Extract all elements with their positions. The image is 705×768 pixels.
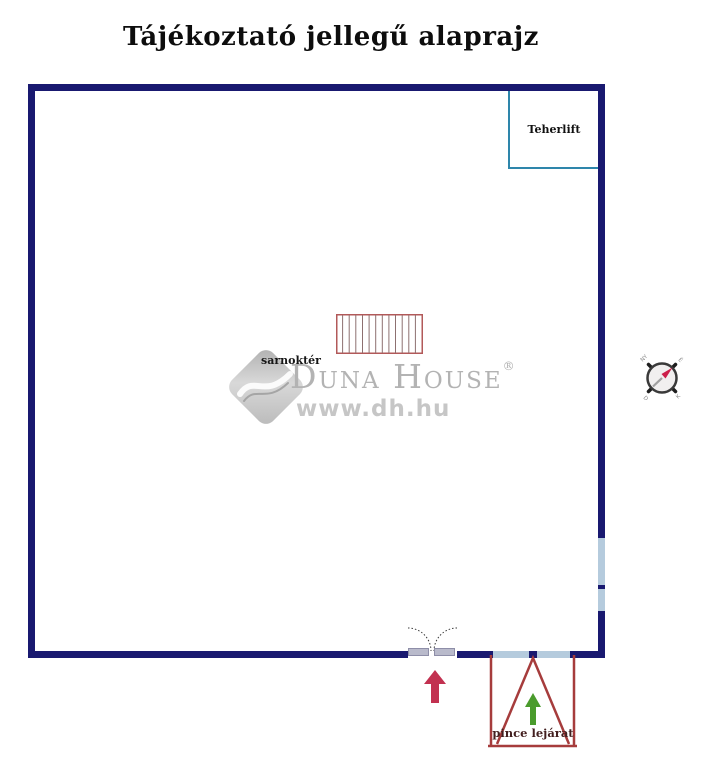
page-title: Tájékoztató jellegű alaprajz bbox=[0, 22, 662, 52]
right-wall-window-lower bbox=[598, 589, 605, 611]
entrance-door-leaf-left bbox=[408, 648, 429, 656]
right-wall-window-upper bbox=[598, 538, 605, 585]
compass-rose-icon: NY É D K bbox=[641, 352, 685, 404]
wall-top bbox=[28, 84, 605, 91]
basement-down-arrow-icon bbox=[525, 693, 541, 725]
entrance-arrow-icon bbox=[423, 670, 447, 704]
dunahouse-url: www.dh.hu bbox=[296, 396, 422, 422]
stairs-symbol bbox=[336, 314, 423, 354]
brand-name: Duna House bbox=[290, 357, 503, 396]
compass-east-label: K bbox=[675, 393, 682, 400]
hall-label: sarnoktér bbox=[261, 354, 321, 367]
registered-trademark-icon: ® bbox=[503, 359, 515, 373]
dunahouse-brand-text: Duna House® bbox=[290, 360, 515, 393]
freight-elevator-label: Teherlift bbox=[528, 123, 581, 136]
compass-south-label: D bbox=[642, 395, 649, 402]
wall-left bbox=[28, 84, 35, 658]
entrance-door-leaf-right bbox=[434, 648, 455, 656]
freight-elevator-room: Teherlift bbox=[508, 91, 598, 169]
basement-entrance-label: pince lejárat bbox=[489, 726, 577, 740]
compass-west-label: NY bbox=[640, 353, 650, 363]
compass-north-label: É bbox=[677, 356, 685, 364]
floor-plan-page: Tájékoztató jellegű alaprajz Teherlift D… bbox=[0, 0, 705, 768]
